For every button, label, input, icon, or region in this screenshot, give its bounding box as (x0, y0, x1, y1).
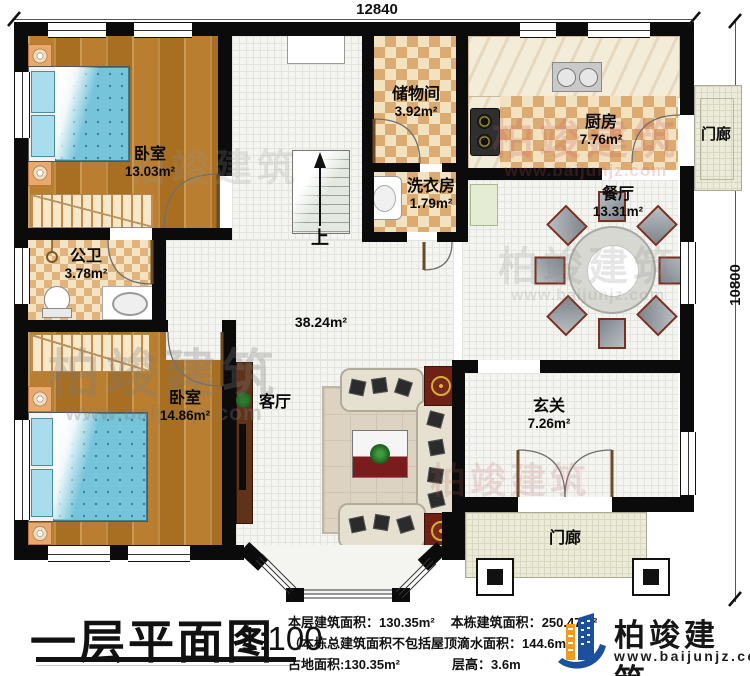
dining-table (568, 226, 656, 314)
wardrobe (30, 334, 150, 372)
pillow (31, 418, 53, 466)
window (680, 432, 696, 495)
wall (680, 166, 694, 242)
footprint-value: 130.35m² (344, 657, 400, 672)
room-label-storage: 储物间 3.92m² (392, 86, 440, 120)
area-note: （本栋总建筑面积不包括屋顶滴水面积：144.6m²） (288, 636, 583, 651)
hall-floor-middle (166, 240, 454, 360)
wall (442, 512, 465, 560)
room-label-porch-bottom: 门廊 (549, 530, 581, 548)
height-value: 3.6m (491, 657, 521, 672)
sofa (338, 503, 426, 549)
nightstand-lamp (28, 160, 52, 186)
kitchen-sink (552, 62, 602, 92)
room-label-bathroom: 公卫 3.78m² (65, 248, 108, 282)
nightstand-lamp (28, 386, 52, 412)
window (14, 420, 30, 520)
window (128, 545, 190, 562)
stairs-up-label: 上 (311, 228, 329, 249)
room-name: 卧室 (160, 390, 210, 408)
company-website: www.baijunjz.com (614, 648, 750, 664)
window (14, 72, 30, 138)
company-logo-icon (552, 610, 610, 672)
floor-area-value: 130.35m² (379, 615, 435, 630)
title-underline (36, 657, 296, 662)
wall (14, 228, 110, 240)
wall (612, 497, 694, 512)
window (680, 242, 696, 304)
wall (452, 497, 518, 512)
wall (152, 240, 166, 320)
room-label-foyer: 玄关 7.26m² (528, 398, 571, 432)
shoe-cabinet (470, 184, 498, 226)
sink-basin (112, 292, 148, 316)
bathroom-vanity (102, 286, 154, 320)
bed-sheet (53, 413, 105, 519)
room-area: 13.31m² (593, 204, 643, 220)
wall (152, 228, 232, 240)
coffee-table (352, 430, 408, 478)
company-name: 柏竣建筑 (614, 610, 750, 676)
drawing-title: 一层平面图 (30, 606, 275, 672)
wall (222, 332, 236, 545)
room-name: 储物间 (392, 86, 440, 104)
room-area: 38.24m² (295, 314, 347, 330)
room-label-laundry: 洗衣房 1.79m² (407, 178, 455, 212)
wall (437, 232, 468, 242)
wall (362, 36, 374, 232)
nightstand-lamp (28, 44, 52, 68)
bed-sheet (55, 67, 105, 159)
room-area: 3.92m² (392, 104, 440, 120)
right-dimension-label: 10800 (727, 250, 743, 320)
footer-info-line3: 占地面积:130.35m²层高：3.6m (288, 654, 521, 673)
pillow (31, 71, 55, 113)
height-label: 层高： (452, 657, 491, 672)
room-label-bedroom2: 卧室 14.86m² (160, 390, 210, 424)
wall (362, 232, 407, 242)
room-area: 13.03m² (125, 164, 175, 180)
stove (470, 108, 500, 156)
room-label-kitchen: 厨房 7.76m² (580, 114, 623, 148)
wall (374, 163, 420, 172)
room-name: 门廊 (549, 530, 581, 548)
room-name: 玄关 (528, 398, 571, 416)
room-name: 洗衣房 (407, 178, 455, 196)
room-label-living: 客厅 (259, 394, 291, 412)
room-area: 7.76m² (580, 132, 623, 148)
pillow (31, 469, 53, 517)
wardrobe (30, 194, 154, 228)
wall (452, 373, 465, 512)
dining-chair (535, 257, 566, 285)
wall (680, 22, 694, 115)
window (588, 22, 650, 38)
title-underline-thin (36, 665, 296, 666)
room-name: 卧室 (125, 146, 175, 164)
footprint-label: 占地面积: (288, 657, 344, 672)
wall (218, 36, 232, 176)
wall (14, 320, 168, 332)
toilet-tank (42, 308, 72, 318)
room-name: 厨房 (580, 114, 623, 132)
floor-area-label: 本层建筑面积： (288, 615, 379, 630)
room-name: 门廊 (701, 126, 731, 143)
window (134, 22, 192, 38)
plant (370, 444, 390, 464)
bed (28, 412, 148, 522)
room-name: 公卫 (65, 248, 108, 266)
wall (222, 320, 236, 332)
wall (452, 360, 478, 373)
room-label-porch-right: 门廊 (701, 126, 731, 143)
dining-chair (598, 318, 626, 349)
footer-info-line2: （本栋总建筑面积不包括屋顶滴水面积：144.6m²） (288, 633, 583, 652)
room-name: 客厅 (259, 394, 291, 412)
room-area: 14.86m² (160, 408, 210, 424)
room-area: 7.26m² (528, 416, 571, 432)
room-name: 餐厅 (593, 186, 643, 204)
window (48, 22, 106, 38)
top-dimension-label: 12840 (322, 1, 432, 18)
staircase (292, 150, 350, 234)
bed (28, 66, 130, 162)
window (14, 248, 30, 304)
top-dimension-line (14, 19, 694, 20)
wall (456, 36, 468, 168)
floor-plan-page: 12840 10800 (0, 0, 750, 676)
wall (540, 360, 694, 373)
total-area-label: 本栋建筑面积： (451, 615, 542, 630)
porch-column (476, 558, 514, 596)
plant (236, 392, 251, 408)
room-label-dining: 餐厅 13.31m² (593, 186, 643, 220)
wall (456, 168, 602, 180)
pillow (31, 115, 55, 157)
porch-column (632, 558, 670, 596)
footer-info-line1: 本层建筑面积：130.35m²本栋建筑面积：250.47m² (288, 612, 597, 631)
foyer-floor (462, 373, 678, 497)
room-label-bedroom1: 卧室 13.03m² (125, 146, 175, 180)
tv (239, 424, 246, 490)
stairs-up-text: 上 (311, 228, 329, 249)
window (48, 545, 110, 562)
nightstand-lamp (28, 522, 52, 545)
sofa (340, 368, 424, 412)
window (520, 22, 556, 38)
room-area: 3.78m² (65, 266, 108, 282)
hall-area-label: 38.24m² (295, 314, 347, 330)
room-area: 1.79m² (407, 196, 455, 212)
